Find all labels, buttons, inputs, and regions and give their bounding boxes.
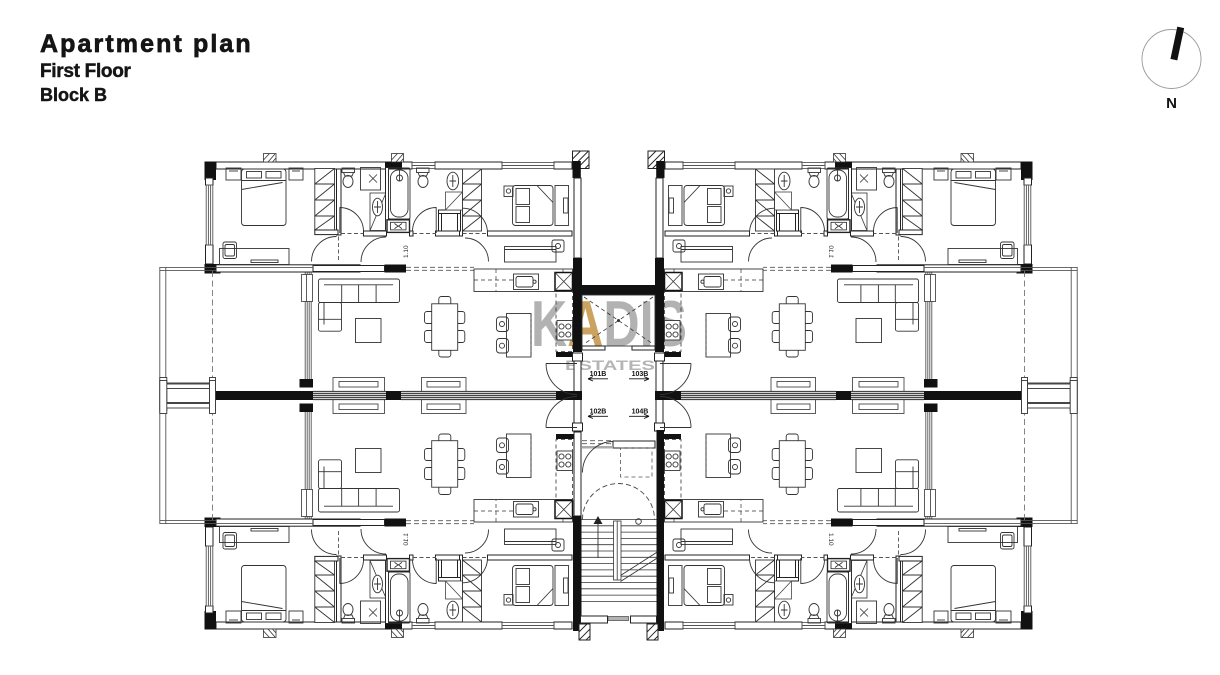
svg-text:1.10: 1.10 [403,245,410,258]
svg-text:N: N [1166,95,1177,112]
